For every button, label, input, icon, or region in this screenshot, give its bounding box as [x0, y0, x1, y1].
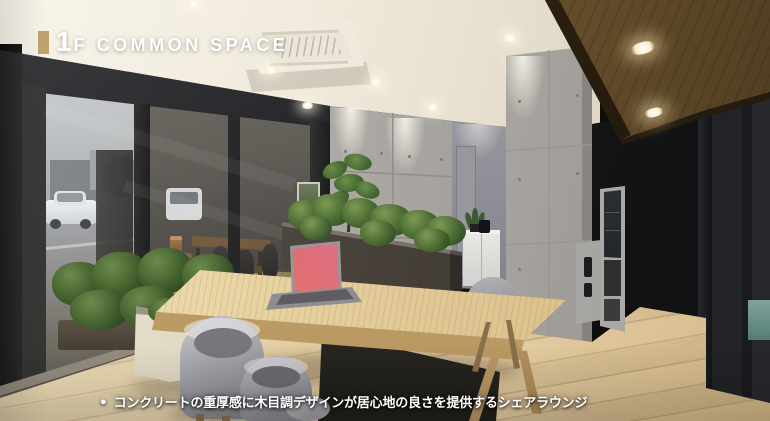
title-accent-bar — [38, 31, 49, 54]
title-label: F COMMON SPACE — [74, 36, 289, 54]
title-floor-number: 1 — [56, 28, 74, 56]
vignette-overlay — [0, 0, 770, 421]
caption-bullet-icon: ● — [100, 396, 107, 408]
page-title: 1 F COMMON SPACE — [38, 28, 288, 56]
caption: ● コンクリートの重厚感に木目調デザインが居心地の良さを提供するシェアラウンジ — [100, 392, 587, 411]
caption-text: コンクリートの重厚感に木目調デザインが居心地の良さを提供するシェアラウンジ — [114, 392, 588, 411]
interior-render: 1 F COMMON SPACE ● コンクリートの重厚感に木目調デザインが居心… — [0, 0, 770, 421]
